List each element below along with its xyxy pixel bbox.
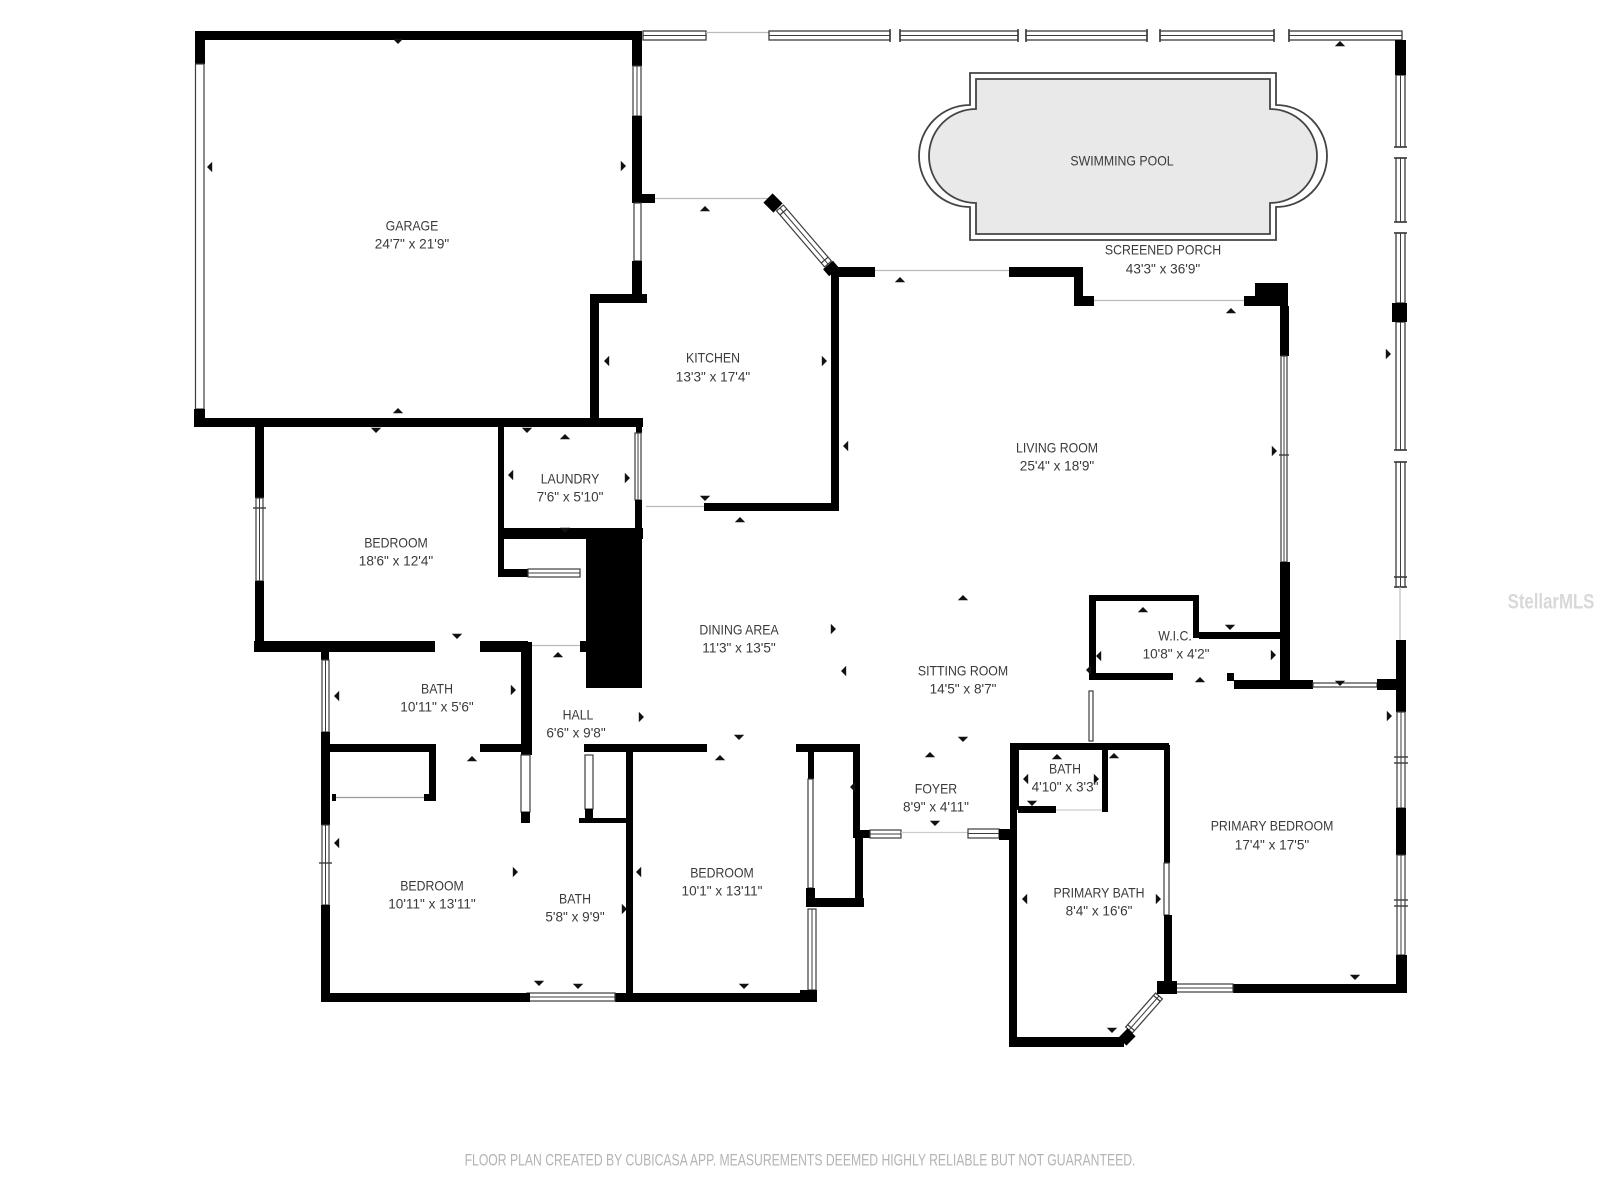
svg-text:25'4" x 18'9": 25'4" x 18'9" bbox=[1020, 459, 1095, 474]
svg-text:4'10" x 3'3": 4'10" x 3'3" bbox=[1032, 780, 1099, 795]
svg-text:10'11" x 13'11": 10'11" x 13'11" bbox=[388, 897, 476, 912]
svg-text:8'4" x 16'6": 8'4" x 16'6" bbox=[1066, 904, 1133, 919]
svg-text:SITTING ROOM: SITTING ROOM bbox=[918, 663, 1008, 679]
svg-text:StellarMLS: StellarMLS bbox=[1508, 591, 1595, 614]
svg-text:17'4" x 17'5": 17'4" x 17'5" bbox=[1235, 838, 1310, 853]
svg-text:43'3" x 36'9": 43'3" x 36'9" bbox=[1126, 262, 1201, 277]
svg-text:18'6" x 12'4": 18'6" x 12'4" bbox=[359, 554, 434, 569]
svg-text:SWIMMING POOL: SWIMMING POOL bbox=[1070, 153, 1173, 169]
svg-text:13'3" x 17'4": 13'3" x 17'4" bbox=[676, 370, 751, 385]
svg-text:BATH: BATH bbox=[1049, 761, 1081, 777]
svg-text:FOYER: FOYER bbox=[915, 781, 957, 797]
svg-text:BEDROOM: BEDROOM bbox=[364, 535, 428, 551]
svg-text:GARAGE: GARAGE bbox=[386, 218, 439, 234]
svg-text:10'8" x 4'2": 10'8" x 4'2" bbox=[1143, 647, 1210, 662]
svg-text:14'5" x 8'7": 14'5" x 8'7" bbox=[930, 682, 997, 697]
svg-text:PRIMARY BATH: PRIMARY BATH bbox=[1054, 885, 1145, 901]
svg-text:5'8" x 9'9": 5'8" x 9'9" bbox=[545, 910, 604, 925]
svg-text:LIVING ROOM: LIVING ROOM bbox=[1016, 440, 1098, 456]
svg-text:BATH: BATH bbox=[421, 681, 453, 697]
svg-text:SCREENED PORCH: SCREENED PORCH bbox=[1105, 242, 1221, 258]
svg-text:FLOOR PLAN CREATED BY CUBICASA: FLOOR PLAN CREATED BY CUBICASA APP. MEAS… bbox=[465, 1152, 1136, 1170]
svg-text:LAUNDRY: LAUNDRY bbox=[541, 471, 600, 487]
svg-text:8'9" x 4'11": 8'9" x 4'11" bbox=[903, 800, 969, 815]
svg-text:KITCHEN: KITCHEN bbox=[686, 350, 740, 366]
svg-text:BEDROOM: BEDROOM bbox=[400, 878, 464, 894]
svg-text:24'7" x 21'9": 24'7" x 21'9" bbox=[375, 237, 450, 252]
svg-text:BATH: BATH bbox=[559, 891, 591, 907]
svg-text:10'11" x 5'6": 10'11" x 5'6" bbox=[400, 700, 474, 715]
svg-text:DINING AREA: DINING AREA bbox=[699, 622, 779, 638]
svg-text:11'3" x 13'5": 11'3" x 13'5" bbox=[702, 641, 776, 656]
svg-text:6'6" x 9'8": 6'6" x 9'8" bbox=[546, 726, 605, 741]
svg-text:W.I.C.: W.I.C. bbox=[1158, 628, 1192, 644]
svg-text:7'6" x 5'10": 7'6" x 5'10" bbox=[537, 490, 604, 505]
svg-text:HALL: HALL bbox=[563, 707, 594, 723]
svg-text:PRIMARY BEDROOM: PRIMARY BEDROOM bbox=[1211, 818, 1334, 834]
svg-text:BEDROOM: BEDROOM bbox=[690, 865, 754, 881]
svg-text:10'1" x 13'11": 10'1" x 13'11" bbox=[682, 884, 763, 899]
